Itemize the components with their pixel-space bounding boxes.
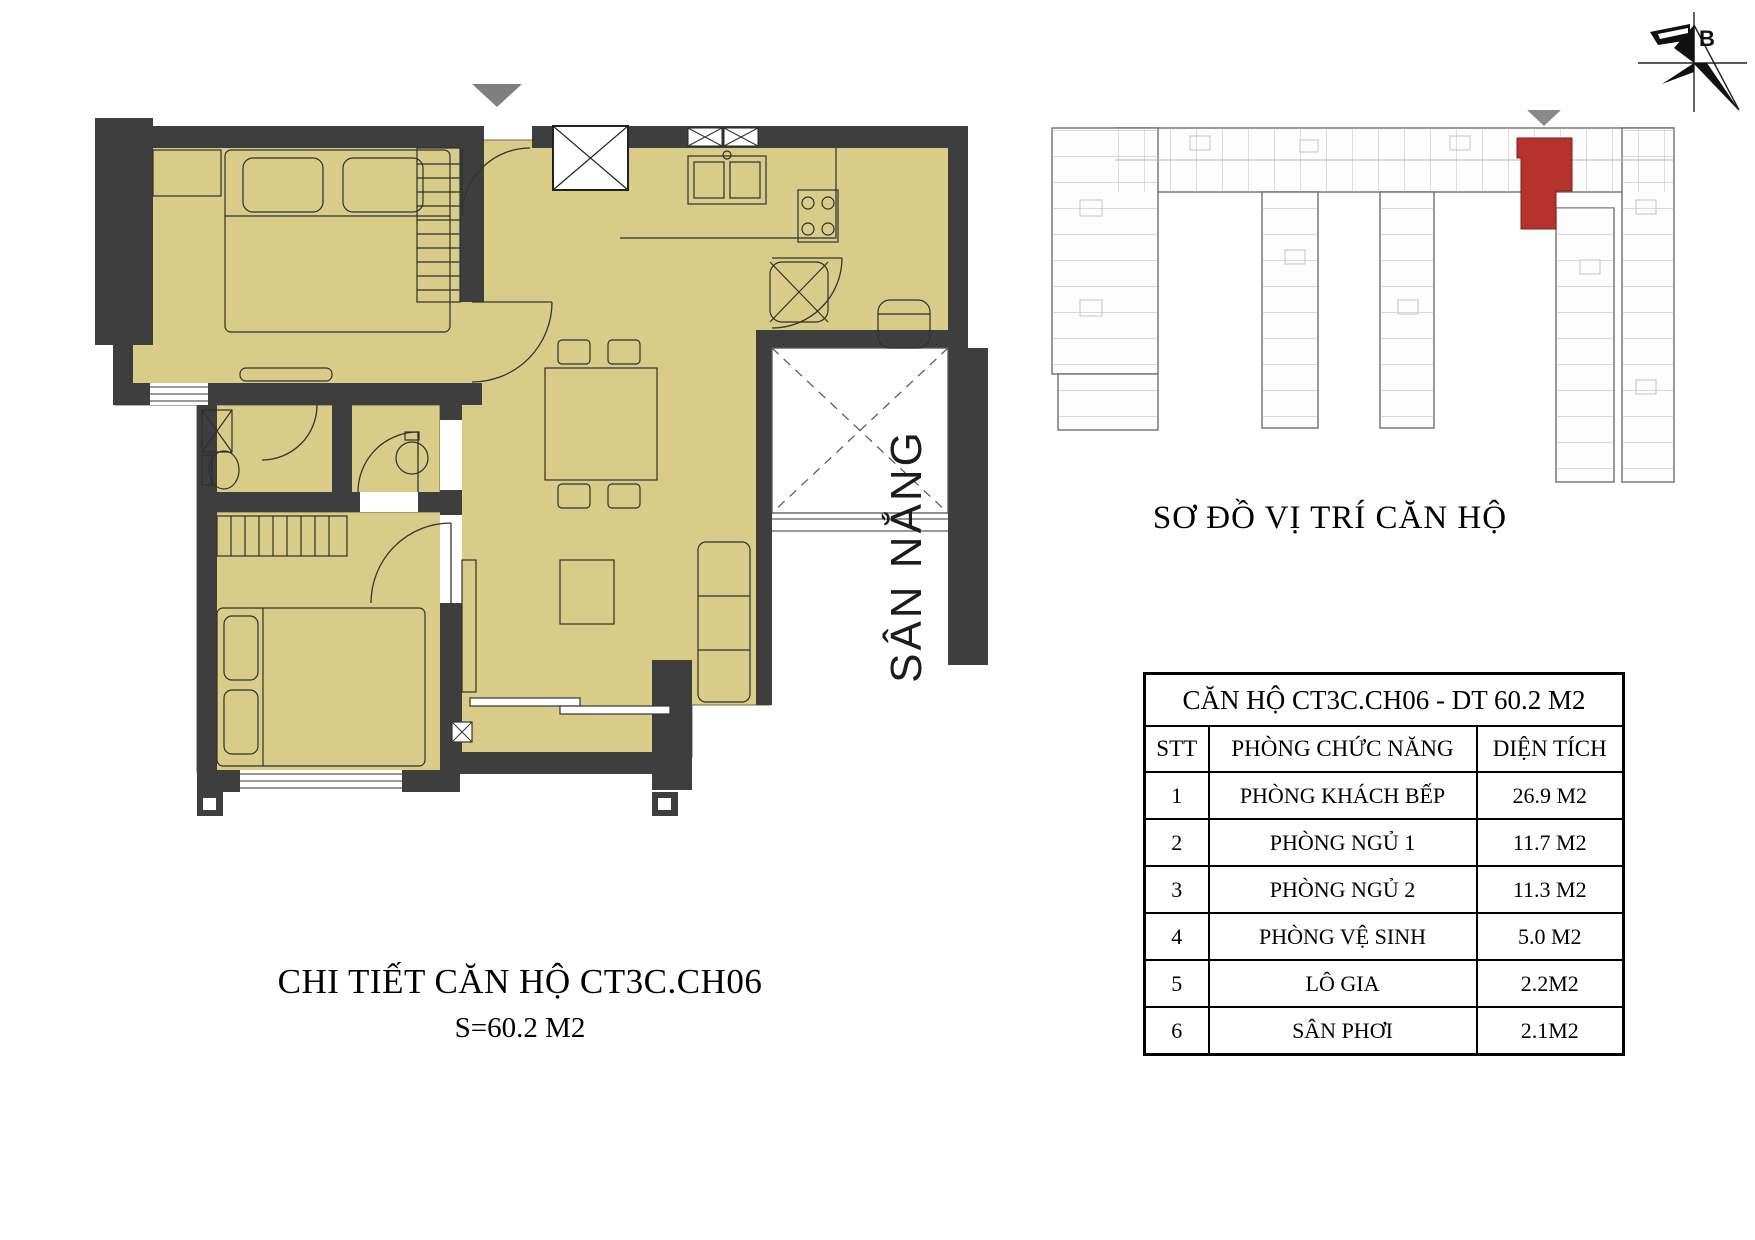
- cell-stt: 1: [1145, 772, 1209, 819]
- table-header-row: STT PHÒNG CHỨC NĂNG DIỆN TÍCH: [1145, 726, 1624, 772]
- compass-label: B: [1699, 26, 1715, 51]
- table-row: 6 SÂN PHƠI 2.1M2: [1145, 1007, 1624, 1055]
- location-marker-icon: [1527, 110, 1561, 126]
- cell-area: 11.3 M2: [1477, 866, 1624, 913]
- cell-area: 2.2M2: [1477, 960, 1624, 1007]
- table-row: 4 PHÒNG VỆ SINH 5.0 M2: [1145, 913, 1624, 960]
- spec-table-body: 1 PHÒNG KHÁCH BẾP 26.9 M2 2 PHÒNG NGỦ 1 …: [1145, 772, 1624, 1055]
- sun-yard-label: SÂN NẮNG: [881, 429, 931, 683]
- cell-room: SÂN PHƠI: [1209, 1007, 1477, 1055]
- north-compass-icon: B: [1620, 0, 1755, 130]
- floor-plan-area: S=60.2 M2: [120, 1012, 920, 1045]
- table-row: 1 PHÒNG KHÁCH BẾP 26.9 M2: [1145, 772, 1624, 819]
- location-map-title: SƠ ĐỒ VỊ TRÍ CĂN HỘ: [1060, 500, 1600, 537]
- table-row: 3 PHÒNG NGỦ 2 11.3 M2: [1145, 866, 1624, 913]
- cell-area: 26.9 M2: [1477, 772, 1624, 819]
- table-title-row: CĂN HỘ CT3C.CH06 - DT 60.2 M2: [1145, 674, 1624, 727]
- col-room: PHÒNG CHỨC NĂNG: [1209, 726, 1477, 772]
- cell-area: 2.1M2: [1477, 1007, 1624, 1055]
- cell-stt: 2: [1145, 819, 1209, 866]
- col-stt: STT: [1145, 726, 1209, 772]
- cell-room: PHÒNG NGỦ 2: [1209, 866, 1477, 913]
- brochure-page: SÂN NẮNG: [0, 0, 1755, 1240]
- table-row: 5 LÔ GIA 2.2M2: [1145, 960, 1624, 1007]
- cell-stt: 4: [1145, 913, 1209, 960]
- floor-plan-caption: CHI TIẾT CĂN HỘ CT3C.CH06 S=60.2 M2: [120, 962, 920, 1045]
- cell-room: PHÒNG VỆ SINH: [1209, 913, 1477, 960]
- location-map: [1040, 100, 1690, 500]
- cell-room: PHÒNG NGỦ 1: [1209, 819, 1477, 866]
- cell-room: PHÒNG KHÁCH BẾP: [1209, 772, 1477, 819]
- cell-stt: 5: [1145, 960, 1209, 1007]
- floor-plan: SÂN NẮNG: [60, 60, 1020, 850]
- table-row: 2 PHÒNG NGỦ 1 11.7 M2: [1145, 819, 1624, 866]
- cell-area: 11.7 M2: [1477, 819, 1624, 866]
- cell-area: 5.0 M2: [1477, 913, 1624, 960]
- col-area: DIỆN TÍCH: [1477, 726, 1624, 772]
- floor-plan-title: CHI TIẾT CĂN HỘ CT3C.CH06: [120, 962, 920, 1002]
- table-title: CĂN HỘ CT3C.CH06 - DT 60.2 M2: [1145, 674, 1624, 727]
- shaft-box: [553, 126, 628, 190]
- cell-stt: 3: [1145, 866, 1209, 913]
- cell-stt: 6: [1145, 1007, 1209, 1055]
- cell-room: LÔ GIA: [1209, 960, 1477, 1007]
- spec-table: CĂN HỘ CT3C.CH06 - DT 60.2 M2 STT PHÒNG …: [1143, 672, 1625, 1056]
- entrance-marker-icon: [472, 84, 522, 107]
